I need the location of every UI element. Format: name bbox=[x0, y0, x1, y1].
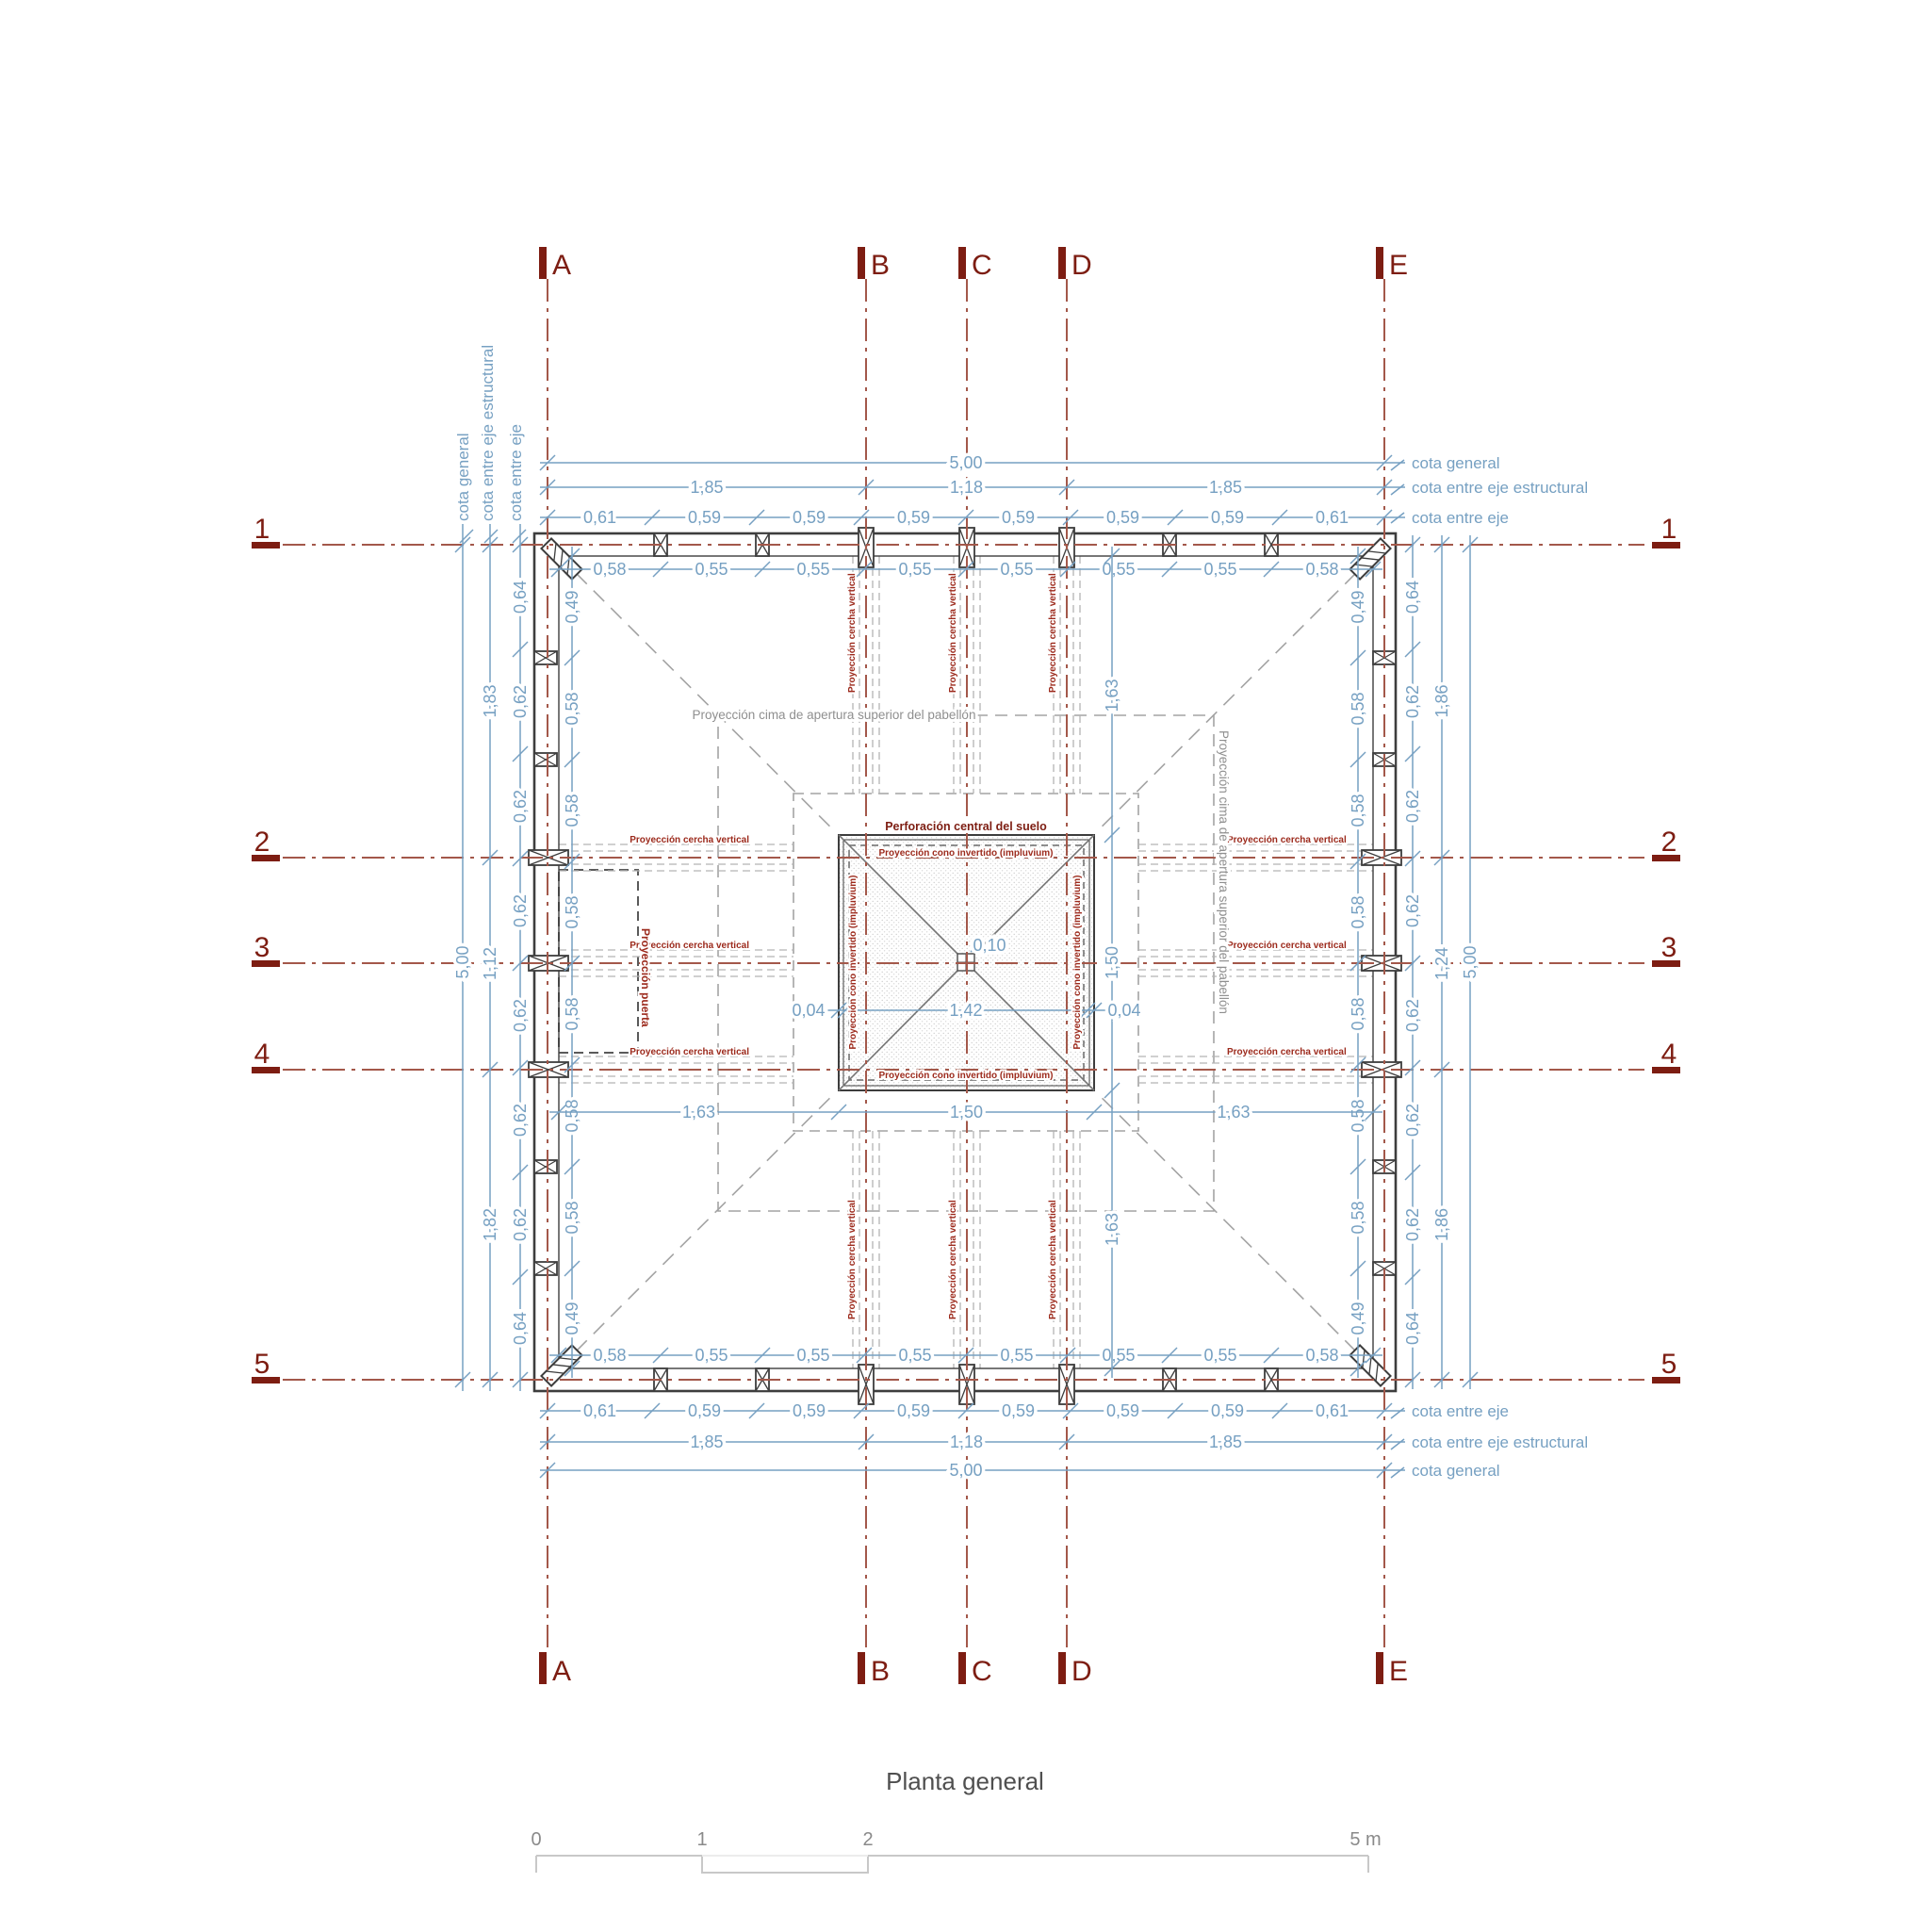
dim-label: 1,50 bbox=[950, 1103, 983, 1122]
dim-label: 0,62 bbox=[1403, 894, 1422, 927]
cercha-label-bottom-B: Proyección cercha vertical bbox=[847, 1200, 858, 1319]
dim-label: 0,55 bbox=[898, 1346, 931, 1365]
cota-leader-slash bbox=[1391, 484, 1404, 495]
dim-label: 1,86 bbox=[1432, 684, 1451, 717]
column-label-bottom: D bbox=[1071, 1656, 1092, 1687]
column-mark-bar bbox=[958, 247, 966, 279]
column-label-top: E bbox=[1389, 250, 1408, 281]
dim-label: 0,58 bbox=[593, 1346, 626, 1365]
row-label-left: 1 bbox=[254, 514, 270, 545]
dim-label: 0,58 bbox=[1349, 1201, 1367, 1234]
dim-label: 0,49 bbox=[1349, 1302, 1367, 1334]
dim-label: 0,58 bbox=[563, 1201, 581, 1234]
dim-label: 1,86 bbox=[1432, 1208, 1451, 1241]
dim-label: 0,58 bbox=[1349, 997, 1367, 1030]
dim-label: 0,58 bbox=[563, 997, 581, 1030]
dim-label: 0,62 bbox=[511, 685, 530, 718]
column-mark-bar bbox=[1058, 247, 1066, 279]
cercha-label-top-D: Proyección cercha vertical bbox=[1048, 573, 1058, 693]
row-label-right: 5 bbox=[1661, 1349, 1677, 1380]
dim-label: 5,00 bbox=[949, 453, 982, 472]
wall-post bbox=[534, 753, 557, 766]
dim-label: 1,18 bbox=[950, 478, 983, 497]
dim-label: 0,64 bbox=[511, 581, 530, 614]
dim-label: 0,59 bbox=[793, 508, 826, 527]
dim-chain-interior_v: 1,631,501,63 bbox=[1103, 547, 1121, 1378]
scale-bar: 0 1 2 5 m bbox=[531, 1829, 1381, 1873]
cercha-label-bottom-C: Proyección cercha vertical bbox=[948, 1200, 958, 1319]
dim-label: 0,58 bbox=[563, 1099, 581, 1132]
dim-label: 0,55 bbox=[1203, 560, 1236, 579]
cota-leader-slash bbox=[1391, 1439, 1404, 1449]
wall-post bbox=[534, 1160, 557, 1173]
dim-label: 0,55 bbox=[1203, 1346, 1236, 1365]
dim-label: 0,58 bbox=[563, 794, 581, 827]
column-mark-bar bbox=[958, 1652, 966, 1684]
dim-label: 5,00 bbox=[453, 945, 472, 978]
cercha-label-bottom-D: Proyección cercha vertical bbox=[1048, 1200, 1058, 1319]
dim-label: 0,55 bbox=[796, 1346, 829, 1365]
dim-label: 1,18 bbox=[950, 1433, 983, 1451]
dim-chain-bottom_outer: 5,00 bbox=[540, 1461, 1405, 1480]
dim-label: 0,59 bbox=[1002, 1401, 1035, 1420]
dim-label: 1,12 bbox=[481, 947, 499, 980]
dim-chain-top_axes: 0,610,590,590,590,590,590,590,61 bbox=[540, 508, 1405, 527]
dim-label: 0,59 bbox=[897, 1401, 930, 1420]
dim-label: 1,85 bbox=[1209, 1433, 1242, 1451]
dim-label: 0,49 bbox=[563, 590, 581, 623]
dim-label: 0,55 bbox=[898, 560, 931, 579]
dim-label: 0,62 bbox=[1403, 790, 1422, 823]
dim-label: 0,04 bbox=[1107, 1001, 1140, 1020]
dim-label: 0,58 bbox=[1349, 794, 1367, 827]
column-mark-bar bbox=[539, 247, 547, 279]
column-mark-bar bbox=[539, 1652, 547, 1684]
dim-label: 0,55 bbox=[1000, 1346, 1033, 1365]
dim-label: 0,49 bbox=[1349, 590, 1367, 623]
cota-leader-slash bbox=[1391, 460, 1404, 470]
cono-invertido-label-bottom: Proyección cono invertido (impluvium) bbox=[878, 1071, 1053, 1081]
cono-invertido-label-left: Proyección cono invertido (impluvium) bbox=[848, 875, 859, 1049]
column-label-bottom: E bbox=[1389, 1656, 1408, 1687]
dim-label: 0,58 bbox=[1349, 1099, 1367, 1132]
column-label-bottom: A bbox=[552, 1656, 571, 1687]
dim-label: 0,59 bbox=[897, 508, 930, 527]
row-label-left: 5 bbox=[254, 1349, 270, 1380]
cercha-label-left-2: Proyección cercha vertical bbox=[630, 835, 749, 845]
floor-plan-drawing: AABBCCDDEE1122334455 5,001,851,181,850,6… bbox=[0, 0, 1930, 1932]
cota-leader-slash bbox=[1391, 1408, 1404, 1418]
dim-label: 0,64 bbox=[511, 1312, 530, 1345]
dim-chain-left_outer: 5,00 bbox=[453, 524, 472, 1391]
wall-post bbox=[534, 1262, 557, 1275]
scale-tick-1: 1 bbox=[696, 1829, 707, 1850]
dim-label: 1,63 bbox=[682, 1103, 715, 1122]
scale-end-label: 5 m bbox=[1349, 1829, 1381, 1850]
dim-label: 0,64 bbox=[1403, 1312, 1422, 1345]
dim-label: 0,58 bbox=[1305, 1346, 1338, 1365]
column-mark-bar bbox=[1376, 247, 1383, 279]
dim-chain-top_outer: 5,00 bbox=[540, 453, 1405, 472]
dim-label: 0,58 bbox=[1305, 560, 1338, 579]
scale-bar-step-line bbox=[536, 1856, 1368, 1873]
row-label-left: 2 bbox=[254, 827, 270, 858]
cota-eje-label-bottomright: cota entre eje bbox=[1412, 1402, 1509, 1420]
column-label-top: B bbox=[871, 250, 890, 281]
dim-chain-bottom_axes: 0,610,590,590,590,590,590,590,61 bbox=[540, 1401, 1405, 1420]
scale-tick-0: 0 bbox=[531, 1829, 541, 1850]
dim-label: 1,85 bbox=[690, 478, 723, 497]
dim-label: 0,59 bbox=[1106, 1401, 1139, 1420]
cota-estructural-label-bottomright: cota entre eje estructural bbox=[1412, 1433, 1588, 1451]
dim-label: 1,63 bbox=[1103, 679, 1121, 712]
dim-label: 0,58 bbox=[1349, 895, 1367, 928]
dim-label: 0,04 bbox=[792, 1001, 825, 1020]
column-label-top: C bbox=[972, 250, 992, 281]
cota-estructural-label-topright: cota entre eje estructural bbox=[1412, 479, 1588, 497]
dim-chain-left_struct: 1,831,121,82 bbox=[481, 524, 499, 1391]
dim-label: 5,00 bbox=[949, 1461, 982, 1480]
cercha-label-left-4: Proyección cercha vertical bbox=[630, 1047, 749, 1057]
row-label-right: 4 bbox=[1661, 1039, 1677, 1070]
dim-label: 0,59 bbox=[688, 1401, 721, 1420]
dim-label: 0,62 bbox=[511, 894, 530, 927]
cercha-label-right-2: Proyección cercha vertical bbox=[1227, 835, 1347, 845]
cima-apertura-label-vertical: Proyección cima de apertura superior del… bbox=[1217, 730, 1231, 1014]
cercha-label-right-3: Proyección cercha vertical bbox=[1227, 941, 1347, 951]
cercha-label-top-B: Proyección cercha vertical bbox=[847, 573, 858, 693]
cota-estructural-label-topleft: cota entre eje estructural bbox=[479, 345, 497, 521]
dim-label: 1,85 bbox=[1209, 478, 1242, 497]
dim-label: 0,62 bbox=[1403, 999, 1422, 1032]
wall-post bbox=[534, 651, 557, 664]
dim-label: 1,85 bbox=[690, 1433, 723, 1451]
puerta-label: Proyección puerta bbox=[639, 928, 652, 1027]
cota-general-label-topright: cota general bbox=[1412, 454, 1500, 472]
scale-tick-2: 2 bbox=[862, 1829, 873, 1850]
dim-label: 0,59 bbox=[1106, 508, 1139, 527]
dim-label: 1,83 bbox=[481, 684, 499, 717]
dim-chain-bottom_struct: 1,851,181,85 bbox=[540, 1433, 1405, 1451]
dim-label: 0,59 bbox=[1211, 1401, 1244, 1420]
dim-label: 0,59 bbox=[688, 508, 721, 527]
row-label-left: 3 bbox=[254, 932, 270, 963]
dim-label: 1,63 bbox=[1103, 1213, 1121, 1246]
dim-label: 0,62 bbox=[511, 1104, 530, 1137]
drawing-title: Planta general bbox=[886, 1767, 1044, 1795]
dim-label: 0,61 bbox=[1316, 508, 1349, 527]
dim-label: 0,62 bbox=[511, 999, 530, 1032]
dim-label: 0,55 bbox=[1102, 560, 1135, 579]
dim-label: 0,61 bbox=[583, 1401, 616, 1420]
row-label-right: 3 bbox=[1661, 932, 1677, 963]
dim-label: 0,55 bbox=[695, 560, 728, 579]
dim-label: 0,55 bbox=[695, 1346, 728, 1365]
dim-label: 0,55 bbox=[1000, 560, 1033, 579]
dim-label: 0,62 bbox=[511, 790, 530, 823]
dim-label: 1,24 bbox=[1432, 947, 1451, 980]
dim-label: 0,58 bbox=[1349, 692, 1367, 725]
dim-label: 0,49 bbox=[563, 1302, 581, 1334]
dim-label: 0,62 bbox=[1403, 1208, 1422, 1241]
dim-label: 1,42 bbox=[949, 1001, 982, 1020]
column-mark-bar bbox=[858, 1652, 865, 1684]
cono-invertido-label-right: Proyección cono invertido (impluvium) bbox=[1072, 875, 1083, 1049]
row-label-right: 2 bbox=[1661, 827, 1677, 858]
dim-label: 0,58 bbox=[593, 560, 626, 579]
dim-label: 0,59 bbox=[1211, 508, 1244, 527]
column-mark-bar bbox=[858, 247, 865, 279]
column-label-bottom: C bbox=[972, 1656, 992, 1687]
cota-leader-slash bbox=[484, 530, 498, 543]
column-mark-bar bbox=[1376, 1652, 1383, 1684]
cota-general-label-bottomright: cota general bbox=[1412, 1462, 1500, 1480]
row-label-right: 1 bbox=[1661, 514, 1677, 545]
dim-label: 0,59 bbox=[1002, 508, 1035, 527]
dim-label: 0,62 bbox=[1403, 1104, 1422, 1137]
cota-general-label-topleft: cota general bbox=[454, 433, 472, 521]
dim-chain-interior_h: 1,631,501,63 bbox=[549, 1103, 1382, 1122]
dim-label: 0,59 bbox=[793, 1401, 826, 1420]
column-label-top: A bbox=[552, 250, 571, 281]
dim-chain-right_outer: 5,00 bbox=[1461, 535, 1480, 1389]
cota-eje-label-topleft: cota entre eje bbox=[507, 424, 525, 521]
dim-label: 0,61 bbox=[583, 508, 616, 527]
scale-bar-lines bbox=[536, 1856, 1368, 1873]
dim-label-center: 0,10 bbox=[973, 936, 1006, 955]
cima-apertura-label-horizontal: Proyección cima de apertura superior del… bbox=[693, 708, 976, 722]
perforacion-label: Perforación central del suelo bbox=[885, 820, 1047, 833]
cono-invertido-label-top: Proyección cono invertido (impluvium) bbox=[878, 848, 1053, 859]
dim-label: 5,00 bbox=[1461, 945, 1480, 978]
dim-label: 0,62 bbox=[1403, 685, 1422, 718]
dim-label: 1,63 bbox=[1217, 1103, 1250, 1122]
column-mark-bar bbox=[1058, 1652, 1066, 1684]
dim-chain-left_axes: 0,640,620,620,620,620,620,620,64 bbox=[511, 524, 530, 1391]
dim-label: 0,64 bbox=[1403, 581, 1422, 614]
cercha-label-top-C: Proyección cercha vertical bbox=[948, 573, 958, 693]
dim-label: 1,82 bbox=[481, 1208, 499, 1241]
dim-chain-right_struct: 1,861,241,86 bbox=[1432, 535, 1451, 1389]
dim-label: 0,58 bbox=[563, 895, 581, 928]
dim-label: 0,62 bbox=[511, 1208, 530, 1241]
dim-label: 0,55 bbox=[796, 560, 829, 579]
row-label-left: 4 bbox=[254, 1039, 270, 1070]
column-label-bottom: B bbox=[871, 1656, 890, 1687]
dim-label: 0,58 bbox=[563, 692, 581, 725]
column-label-top: D bbox=[1071, 250, 1092, 281]
dim-chain-top_struct: 1,851,181,85 bbox=[540, 478, 1405, 497]
cota-eje-label-topright: cota entre eje bbox=[1412, 509, 1509, 527]
dim-label: 1,50 bbox=[1103, 946, 1121, 979]
cota-leader-slash bbox=[1391, 1467, 1404, 1478]
cercha-label-right-4: Proyección cercha vertical bbox=[1227, 1047, 1347, 1057]
center-dimension: 0,10 bbox=[971, 936, 1006, 955]
dim-label: 0,61 bbox=[1316, 1401, 1349, 1420]
